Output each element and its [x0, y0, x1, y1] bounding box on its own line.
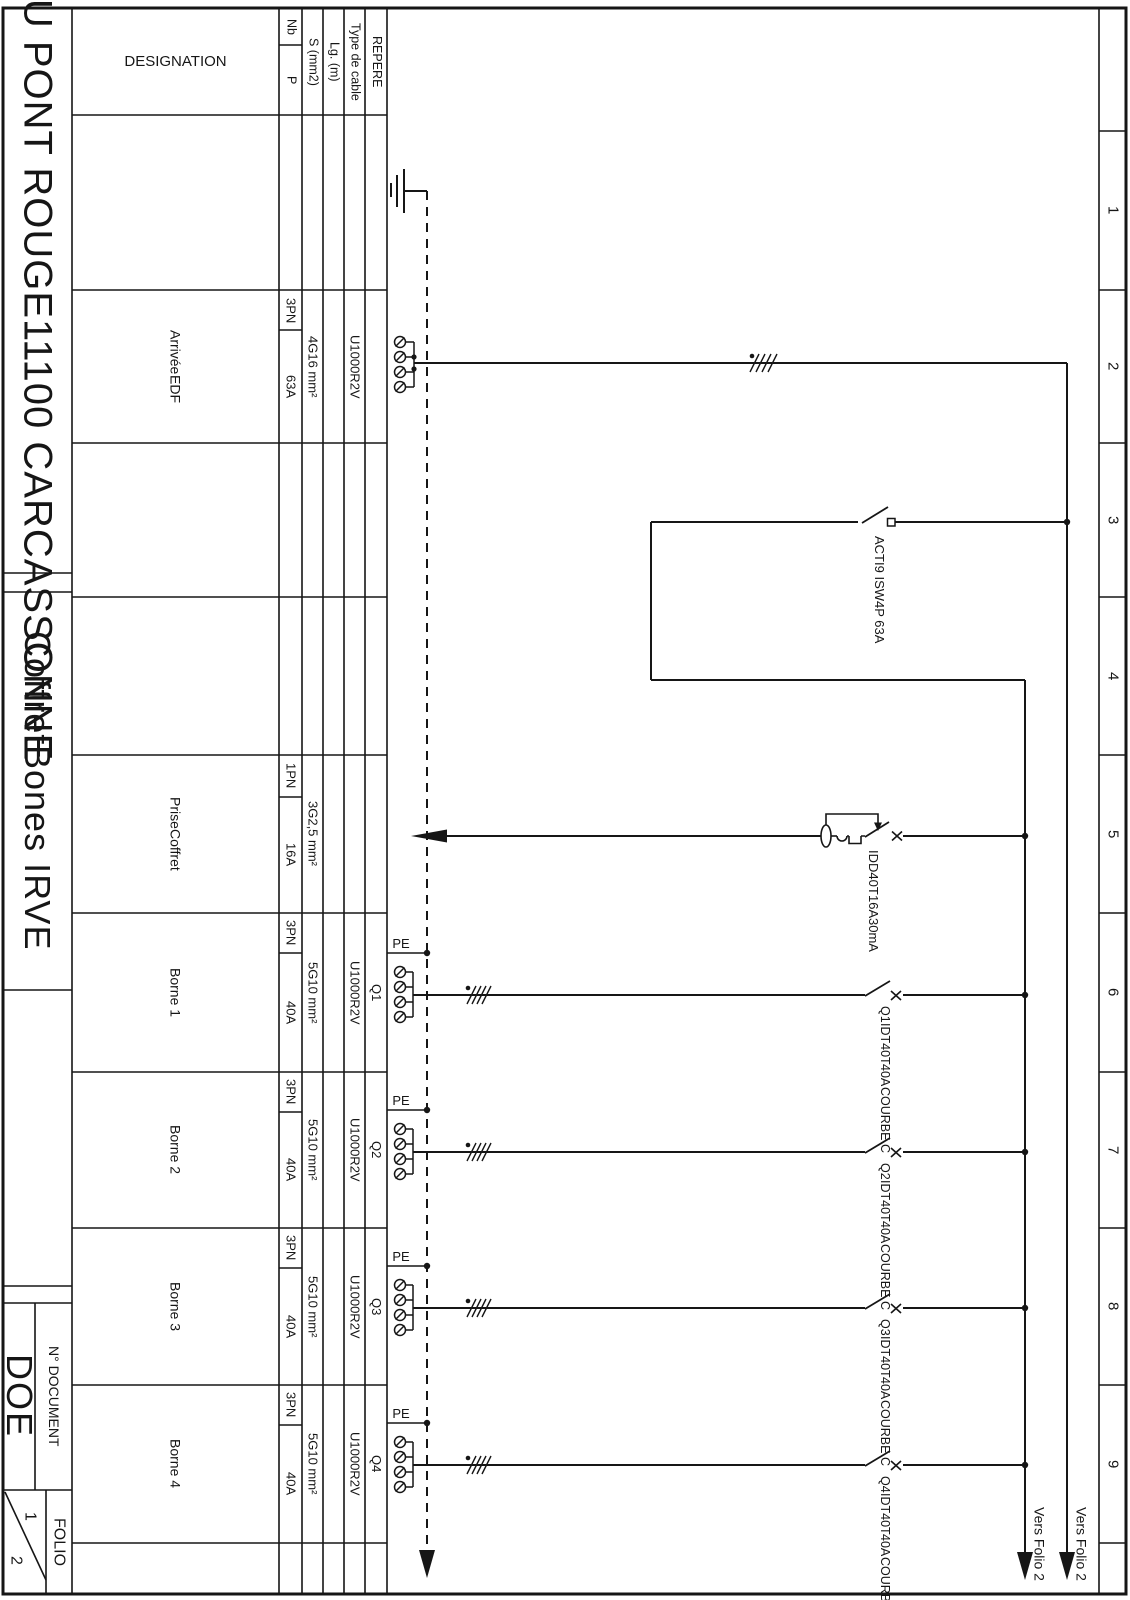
- grid-number-1: 1: [1099, 131, 1126, 290]
- breaker-q1-curve: COURBE C: [877, 1087, 891, 1153]
- arrivee-terminals: [395, 337, 415, 393]
- breaker-q2-name: Q2: [877, 1163, 891, 1180]
- rcd-label-line3: 30mA: [866, 918, 880, 952]
- cabinet-title-line1: Coffret: [21, 631, 54, 745]
- breaker-q3-curve: COURBE C: [877, 1400, 891, 1466]
- breaker-q2-curve: COURBE C: [877, 1244, 891, 1310]
- row-borne1-s: 5G10 mm²: [302, 913, 323, 1072]
- col-header-designation: DESIGNATION: [72, 8, 279, 115]
- breaker-q3-rating: 40A: [877, 1377, 891, 1399]
- row-borne2-p: 40A: [279, 1112, 302, 1228]
- cabinet-title: Coffret Bones IRVE: [3, 592, 72, 990]
- col-header-lg: Lg. (m): [323, 8, 344, 115]
- pe-label-borne4: PE: [387, 1406, 415, 1422]
- schematic-page: HOTEL DU PONT ROUGE 11100 CARCASSONNE Co…: [0, 0, 1130, 1600]
- row-borne3-type: U1000R2V: [344, 1228, 365, 1385]
- row-borne4-repere: Q4: [365, 1385, 387, 1543]
- row-borne1-repere: Q1: [365, 913, 387, 1072]
- grid-number-4: 4: [1099, 597, 1126, 755]
- breaker-q4-label: Q4 IDT40T 40A COURBE C: [856, 1476, 912, 1588]
- row-borne4-p: 40A: [279, 1425, 302, 1543]
- grid-number-7: 7: [1099, 1072, 1126, 1228]
- row-borne2-repere: Q2: [365, 1072, 387, 1228]
- row-arrivee-type: U1000R2V: [344, 290, 365, 443]
- project-title-line1: HOTEL DU PONT ROUGE: [21, 0, 55, 319]
- folio-current: 1: [21, 1502, 39, 1530]
- document-number-value: DOE: [3, 1303, 35, 1490]
- cabinet-title-line2: Bones IRVE: [21, 745, 54, 950]
- to-folio-supply-label: Vers Folio 2: [1073, 1500, 1089, 1588]
- breaker-q3-label: Q3 IDT40T 40A COURBE C: [856, 1319, 912, 1431]
- breaker-q1-rating: 40A: [877, 1064, 891, 1086]
- pe-label-borne2: PE: [387, 1093, 415, 1109]
- grid-number-9: 9: [1099, 1385, 1126, 1543]
- pe-bus: [419, 191, 435, 1578]
- row-prise-designation-line1: Prise: [168, 797, 184, 829]
- row-prise-nb: 1PN: [279, 757, 302, 795]
- row-borne3-p: 40A: [279, 1268, 302, 1385]
- row-arrivee-designation: Arrivée EDF: [72, 290, 279, 443]
- row-borne3-nb: 3PN: [279, 1230, 302, 1266]
- folio-total: 2: [7, 1546, 25, 1574]
- col-header-nb: Nb: [279, 8, 302, 45]
- row-borne1-designation: Borne 1: [72, 913, 279, 1072]
- row-borne2-designation: Borne 2: [72, 1072, 279, 1228]
- ground-symbol: [391, 169, 427, 213]
- row-borne4-designation: Borne 4: [72, 1385, 279, 1543]
- rcd-label-line2: 16A: [866, 895, 880, 918]
- row-prise-p: 16A: [279, 797, 302, 913]
- breaker-q4-rating: 40A: [877, 1534, 891, 1556]
- row-prise-s: 3G2,5 mm²: [302, 755, 323, 913]
- document-number-label: N° DOCUMENT: [35, 1303, 72, 1490]
- row-borne3-s: 5G10 mm²: [302, 1228, 323, 1385]
- row-borne1-nb: 3PN: [279, 915, 302, 951]
- breaker-q1-name: Q1: [877, 1006, 891, 1023]
- breaker-q3-device: IDT40T: [877, 1336, 891, 1378]
- project-title: HOTEL DU PONT ROUGE 11100 CARCASSONNE: [3, 8, 72, 573]
- borne1-branch: [387, 953, 1028, 1023]
- breaker-q2-device: IDT40T: [877, 1180, 891, 1222]
- row-arrivee-designation-line2: EDF: [168, 375, 184, 403]
- row-arrivee-s: 4G16 mm²: [302, 290, 323, 443]
- breaker-q1-device: IDT40T: [877, 1023, 891, 1065]
- row-borne4-type: U1000R2V: [344, 1385, 365, 1543]
- row-prise-designation-line2: Coffret: [168, 829, 184, 871]
- folio-label: FOLIO: [46, 1490, 72, 1594]
- grid-number-8: 8: [1099, 1228, 1126, 1385]
- row-arrivee-p: 63A: [279, 330, 302, 443]
- row-borne2-type: U1000R2V: [344, 1072, 365, 1228]
- grid-number-5: 5: [1099, 755, 1126, 913]
- breaker-q4-device: IDT40T: [877, 1493, 891, 1535]
- pe-label-borne1: PE: [387, 936, 415, 952]
- row-borne4-nb: 3PN: [279, 1387, 302, 1423]
- breaker-q4-curve: COURBE C: [877, 1557, 891, 1600]
- col-header-repere: REPERE: [365, 8, 387, 115]
- row-borne1-type: U1000R2V: [344, 913, 365, 1072]
- rcd-label: IDD40T 16A 30mA: [851, 850, 895, 940]
- col-header-s: S (mm2): [302, 8, 323, 115]
- grid-number-2: 2: [1099, 290, 1126, 443]
- breaker-q2-rating: 40A: [877, 1221, 891, 1243]
- conductor-mark-feeder: [750, 354, 777, 372]
- rcd-symbol: [411, 814, 1028, 847]
- breaker-q1-label: Q1 IDT40T 40A COURBE C: [856, 1006, 912, 1118]
- borne4-branch: [387, 1423, 1028, 1493]
- main-switch-label-line1: ACTI9 ISW: [872, 536, 886, 601]
- row-borne3-repere: Q3: [365, 1228, 387, 1385]
- row-prise-designation: Prise Coffret: [72, 755, 279, 913]
- pe-label-borne3: PE: [387, 1249, 415, 1265]
- row-borne4-s: 5G10 mm²: [302, 1385, 323, 1543]
- col-header-p: P: [279, 45, 302, 115]
- row-borne2-s: 5G10 mm²: [302, 1072, 323, 1228]
- grid-number-3: 3: [1099, 443, 1126, 597]
- row-arrivee-designation-line1: Arrivée: [168, 330, 184, 374]
- breaker-q2-label: Q2 IDT40T 40A COURBE C: [856, 1163, 912, 1275]
- borne3-branch: [387, 1266, 1028, 1336]
- main-switch-label-line2: 4P 63A: [872, 601, 886, 643]
- to-folio-bus-label: Vers Folio 2: [1031, 1500, 1047, 1588]
- incoming-feeder: [395, 337, 1076, 1581]
- breaker-q4-name: Q4: [877, 1476, 891, 1493]
- col-header-type: Type de cable: [344, 8, 365, 115]
- borne2-branch: [387, 1110, 1028, 1180]
- row-borne2-nb: 3PN: [279, 1074, 302, 1110]
- row-borne1-p: 40A: [279, 953, 302, 1072]
- rcd-label-line1: IDD40T: [866, 850, 880, 895]
- main-switch-label: ACTI9 ISW 4P 63A: [864, 536, 894, 648]
- breaker-q3-name: Q3: [877, 1319, 891, 1336]
- row-borne3-designation: Borne 3: [72, 1228, 279, 1385]
- grid-number-6: 6: [1099, 913, 1126, 1072]
- row-arrivee-nb: 3PN: [279, 292, 302, 329]
